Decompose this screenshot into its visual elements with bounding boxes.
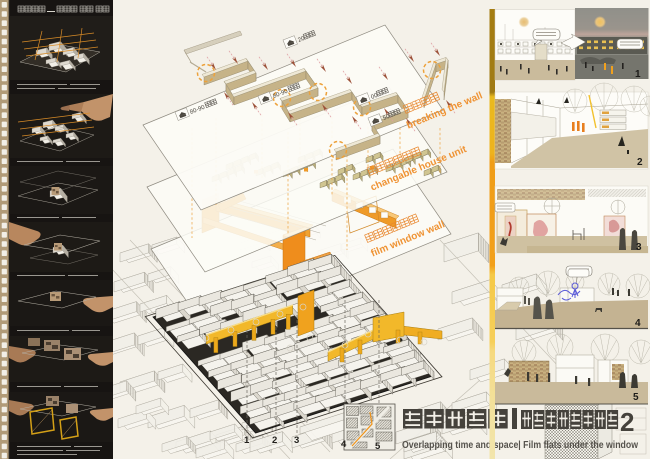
- svg-text:4: 4: [341, 439, 347, 450]
- svg-text:2: 2: [272, 435, 277, 446]
- svg-text:Overlapping time and space| Fi: Overlapping time and space| Film flats u…: [402, 439, 639, 451]
- svg-text:3: 3: [294, 435, 299, 446]
- svg-text:3: 3: [636, 242, 642, 253]
- svg-text:1: 1: [244, 435, 250, 446]
- svg-text:4: 4: [635, 318, 641, 329]
- svg-text:2: 2: [620, 407, 634, 437]
- svg-text:5: 5: [633, 392, 639, 403]
- svg-text:1: 1: [635, 69, 641, 80]
- svg-text:5: 5: [375, 441, 381, 452]
- svg-text:2: 2: [637, 157, 643, 168]
